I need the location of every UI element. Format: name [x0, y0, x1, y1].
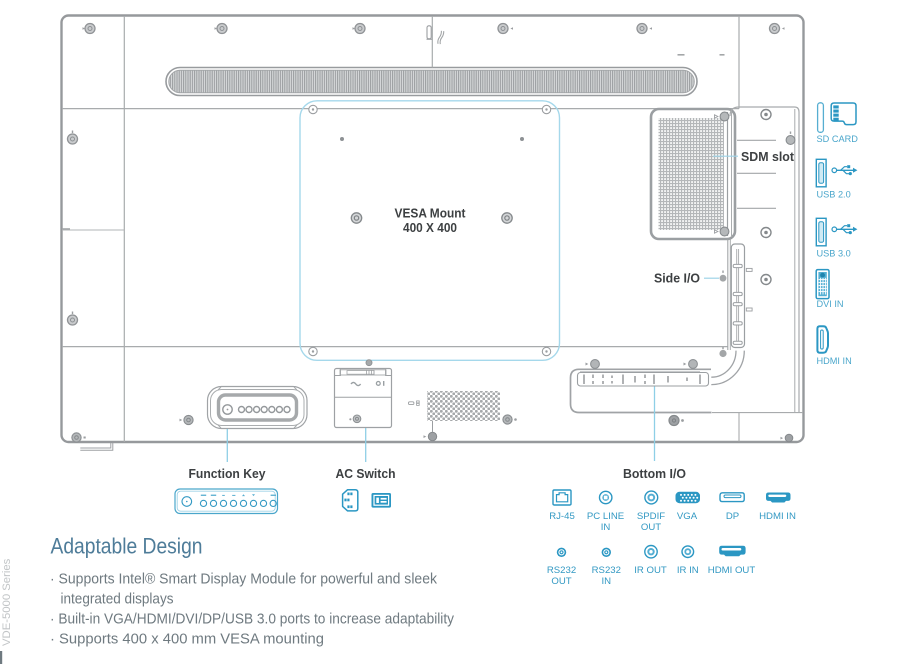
svg-text:USB 2.0: USB 2.0: [817, 190, 851, 200]
svg-text:SPDIF: SPDIF: [637, 511, 665, 522]
svg-text:VESA Mount: VESA Mount: [395, 207, 467, 221]
svg-text:SDM slot: SDM slot: [741, 150, 795, 164]
svg-text:400 X 400: 400 X 400: [403, 221, 457, 235]
svg-text:IN: IN: [601, 522, 611, 533]
svg-text:Side I/O: Side I/O: [654, 272, 700, 286]
svg-text:IR OUT: IR OUT: [634, 565, 667, 576]
svg-text:RS232: RS232: [547, 565, 576, 576]
svg-text:integrated displays: integrated displays: [61, 592, 174, 608]
svg-text:OUT: OUT: [641, 522, 661, 533]
svg-text:USB 3.0: USB 3.0: [817, 249, 851, 259]
svg-text:PC LINE: PC LINE: [587, 511, 624, 522]
svg-text:VGA: VGA: [677, 511, 698, 522]
svg-text:HDMI IN: HDMI IN: [817, 356, 852, 366]
svg-text:IN: IN: [602, 576, 612, 587]
svg-text:· Supports Intel® Smart Displa: · Supports Intel® Smart Display Module f…: [50, 572, 438, 588]
svg-text:HDMI IN: HDMI IN: [759, 511, 796, 522]
svg-text:HDMI OUT: HDMI OUT: [708, 565, 756, 576]
svg-text:RS232: RS232: [592, 565, 621, 576]
svg-text:Function Key: Function Key: [189, 466, 267, 481]
svg-text:SD CARD: SD CARD: [817, 134, 859, 144]
svg-text:AC Switch: AC Switch: [336, 466, 396, 481]
svg-text:DVI IN: DVI IN: [817, 299, 844, 309]
svg-text:OUT: OUT: [551, 576, 571, 587]
svg-text:· Supports 400 x 400 mm VESA m: · Supports 400 x 400 mm VESA mounting: [50, 632, 324, 648]
svg-text:IR IN: IR IN: [677, 565, 699, 576]
svg-text:Adaptable Design: Adaptable Design: [51, 534, 203, 559]
svg-text:DP: DP: [726, 511, 739, 522]
svg-text:Bottom I/O: Bottom I/O: [623, 466, 686, 481]
svg-text:· Built-in VGA/HDMI/DVI/DP/USB: · Built-in VGA/HDMI/DVI/DP/USB 3.0 ports…: [50, 612, 455, 628]
svg-text:VDE-5000 Series: VDE-5000 Series: [1, 558, 13, 646]
svg-text:RJ-45: RJ-45: [549, 511, 575, 522]
